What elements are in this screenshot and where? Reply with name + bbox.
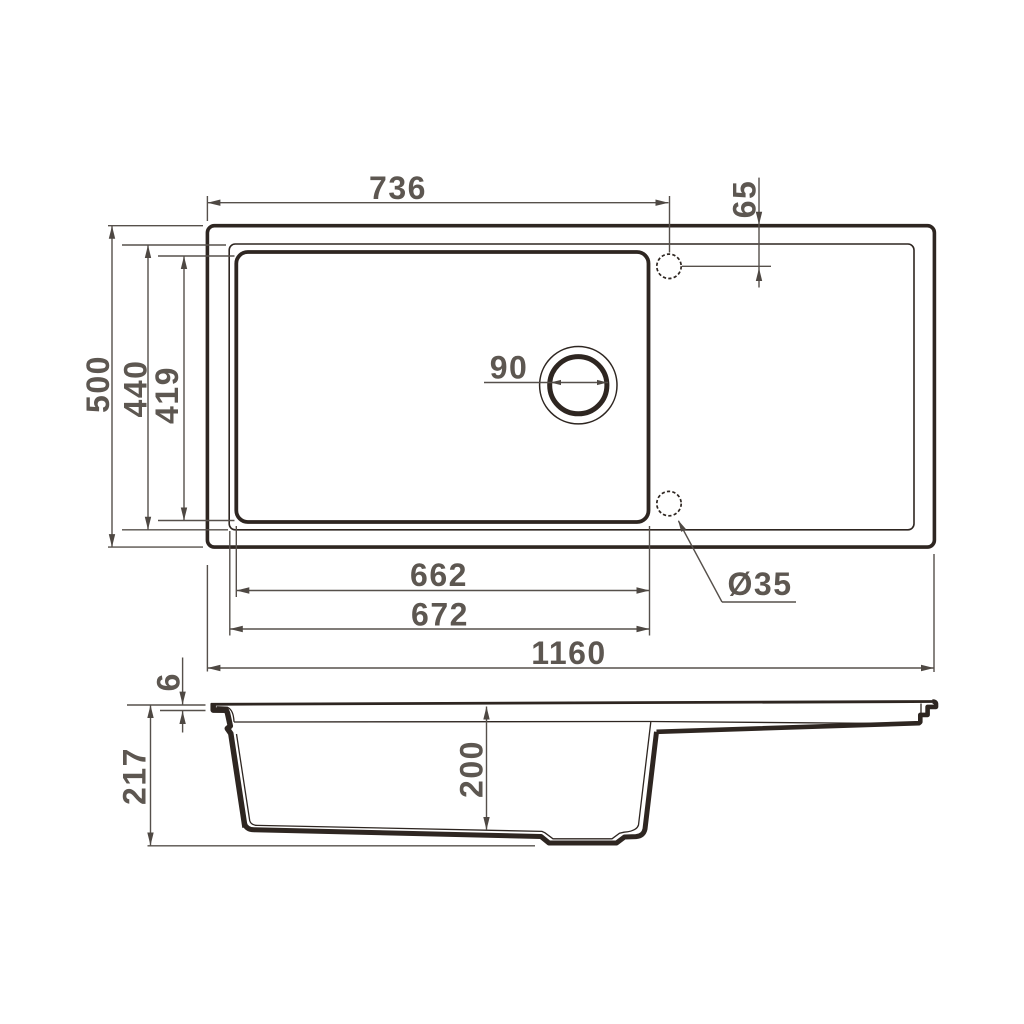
svg-text:65: 65 — [727, 180, 763, 219]
svg-text:672: 672 — [411, 597, 469, 633]
svg-text:6: 6 — [151, 672, 187, 691]
svg-text:736: 736 — [369, 170, 427, 206]
svg-text:500: 500 — [80, 355, 116, 413]
svg-text:662: 662 — [410, 557, 468, 593]
svg-text:90: 90 — [490, 350, 529, 386]
svg-text:419: 419 — [149, 366, 185, 424]
svg-text:Ø35: Ø35 — [728, 566, 793, 602]
svg-text:200: 200 — [454, 740, 490, 798]
svg-text:217: 217 — [117, 747, 153, 805]
svg-text:1160: 1160 — [531, 635, 606, 671]
